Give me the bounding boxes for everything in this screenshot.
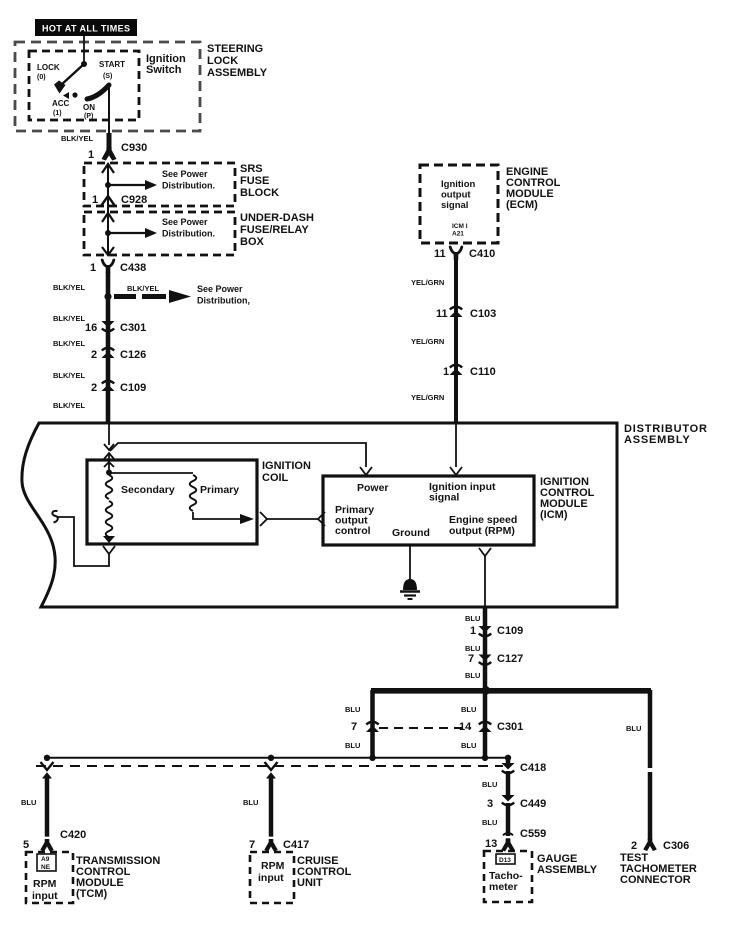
svg-text:See Power: See Power (162, 217, 208, 227)
svg-text:BLK/YEL: BLK/YEL (53, 314, 86, 323)
svg-text:1: 1 (443, 366, 449, 378)
svg-text:14: 14 (459, 721, 472, 733)
svg-text:BLU: BLU (465, 671, 480, 680)
svg-text:input: input (32, 890, 58, 902)
svg-text:Distribution.: Distribution. (162, 181, 215, 191)
svg-text:LOCK: LOCK (207, 55, 238, 67)
svg-text:C930: C930 (121, 142, 147, 154)
svg-text:STEERING: STEERING (207, 43, 263, 55)
svg-text:C420: C420 (60, 829, 86, 841)
svg-text:C126: C126 (120, 349, 146, 361)
svg-text:ASSEMBLY: ASSEMBLY (624, 434, 691, 446)
svg-text:D13: D13 (499, 857, 511, 864)
svg-text:BLU: BLU (345, 741, 360, 750)
svg-text:BLU: BLU (461, 741, 476, 750)
svg-text:Ignition: Ignition (441, 179, 475, 190)
svg-text:input: input (258, 872, 284, 884)
svg-text:A21: A21 (452, 231, 464, 238)
svg-text:YEL/GRN: YEL/GRN (411, 278, 444, 287)
svg-text:C928: C928 (121, 194, 147, 206)
svg-text:BLU: BLU (461, 705, 476, 714)
svg-text:7: 7 (249, 839, 255, 851)
svg-text:BLU: BLU (243, 798, 258, 807)
svg-text:BLK/YEL: BLK/YEL (53, 339, 86, 348)
svg-text:1: 1 (88, 149, 94, 161)
svg-text:7: 7 (351, 721, 357, 733)
svg-text:output (RPM): output (RPM) (449, 525, 515, 537)
svg-text:UNDER-DASH: UNDER-DASH (240, 212, 314, 224)
svg-text:C301: C301 (497, 721, 523, 733)
svg-text:Secondary: Secondary (121, 484, 175, 496)
svg-text:RPM: RPM (261, 860, 285, 872)
svg-text:C559: C559 (520, 828, 546, 840)
svg-text:C306: C306 (663, 840, 689, 852)
svg-text:2: 2 (631, 840, 637, 852)
svg-text:A9: A9 (41, 856, 50, 863)
svg-text:11: 11 (434, 248, 446, 260)
svg-text:C449: C449 (520, 798, 546, 810)
svg-text:Power: Power (357, 482, 389, 494)
svg-text:(S): (S) (103, 73, 112, 80)
svg-text:FUSE: FUSE (240, 175, 269, 187)
svg-text:BLK/YEL: BLK/YEL (61, 134, 94, 143)
svg-text:C109: C109 (497, 625, 523, 637)
svg-text:1: 1 (90, 262, 96, 274)
svg-text:control: control (335, 525, 371, 537)
svg-text:BOX: BOX (240, 236, 265, 248)
svg-text:Distribution,: Distribution, (197, 296, 250, 306)
svg-text:BLU: BLU (21, 798, 36, 807)
svg-text:BLU: BLU (482, 780, 497, 789)
svg-text:YEL/GRN: YEL/GRN (411, 393, 444, 402)
svg-text:ICM I: ICM I (452, 223, 468, 230)
svg-text:BLU: BLU (482, 818, 497, 827)
svg-text:C410: C410 (469, 248, 495, 260)
svg-text:(ECM): (ECM) (506, 199, 538, 211)
svg-text:(0): (0) (37, 74, 46, 81)
svg-text:16: 16 (85, 322, 97, 334)
svg-text:13: 13 (485, 838, 497, 850)
svg-text:YEL/GRN: YEL/GRN (411, 337, 444, 346)
svg-text:3: 3 (487, 798, 493, 810)
svg-text:BLU: BLU (626, 724, 641, 733)
svg-text:5: 5 (23, 839, 29, 851)
svg-text:11: 11 (436, 308, 448, 320)
svg-text:C301: C301 (120, 322, 146, 334)
svg-text:See Power: See Power (197, 284, 243, 294)
svg-text:C417: C417 (283, 839, 309, 851)
svg-text:(1): (1) (53, 110, 62, 117)
svg-text:START: START (99, 60, 125, 69)
svg-text:ACC: ACC (52, 99, 70, 108)
svg-text:C109: C109 (120, 382, 146, 394)
svg-text:output: output (441, 190, 471, 201)
svg-text:1: 1 (92, 194, 98, 206)
svg-text:BLK/YEL: BLK/YEL (53, 401, 86, 410)
svg-text:IGNITION: IGNITION (262, 460, 311, 472)
svg-text:Switch: Switch (146, 64, 182, 76)
svg-text:7: 7 (468, 653, 474, 665)
svg-text:C110: C110 (470, 366, 496, 378)
svg-text:signal: signal (429, 492, 459, 504)
svg-text:BLU: BLU (465, 644, 480, 653)
svg-text:BLK/YEL: BLK/YEL (127, 284, 160, 293)
svg-text:ASSEMBLY: ASSEMBLY (537, 864, 598, 876)
svg-text:LOCK: LOCK (37, 63, 60, 72)
svg-text:FUSE/RELAY: FUSE/RELAY (240, 224, 309, 236)
svg-text:signal: signal (441, 200, 468, 211)
svg-text:BLK/YEL: BLK/YEL (53, 371, 86, 380)
svg-text:C103: C103 (470, 308, 496, 320)
svg-text:2: 2 (91, 382, 97, 394)
svg-text:C418: C418 (520, 762, 546, 774)
svg-text:(P): (P) (84, 113, 93, 120)
svg-text:COIL: COIL (262, 472, 289, 484)
svg-text:HOT AT ALL TIMES: HOT AT ALL TIMES (42, 24, 130, 34)
svg-text:ASSEMBLY: ASSEMBLY (207, 67, 268, 79)
svg-text:UNIT: UNIT (297, 877, 323, 889)
svg-text:C127: C127 (497, 653, 523, 665)
svg-text:1: 1 (470, 625, 476, 637)
svg-text:See Power: See Power (162, 169, 208, 179)
svg-text:RPM: RPM (33, 878, 57, 890)
svg-text:BLK/YEL: BLK/YEL (53, 283, 86, 292)
svg-text:(TCM): (TCM) (76, 888, 107, 900)
svg-text:BLU: BLU (345, 705, 360, 714)
svg-text:C438: C438 (120, 262, 146, 274)
svg-text:Ground: Ground (392, 527, 430, 539)
svg-text:ON: ON (83, 103, 95, 112)
svg-text:Primary: Primary (200, 484, 239, 496)
svg-text:2: 2 (91, 349, 97, 361)
svg-text:CONNECTOR: CONNECTOR (620, 874, 691, 886)
svg-text:SRS: SRS (240, 163, 263, 175)
svg-text:NE: NE (41, 864, 51, 871)
svg-text:BLU: BLU (465, 614, 480, 623)
svg-text:meter: meter (489, 881, 518, 893)
svg-text:Distribution.: Distribution. (162, 229, 215, 239)
svg-text:BLOCK: BLOCK (240, 187, 279, 199)
svg-text:(ICM): (ICM) (540, 509, 568, 521)
